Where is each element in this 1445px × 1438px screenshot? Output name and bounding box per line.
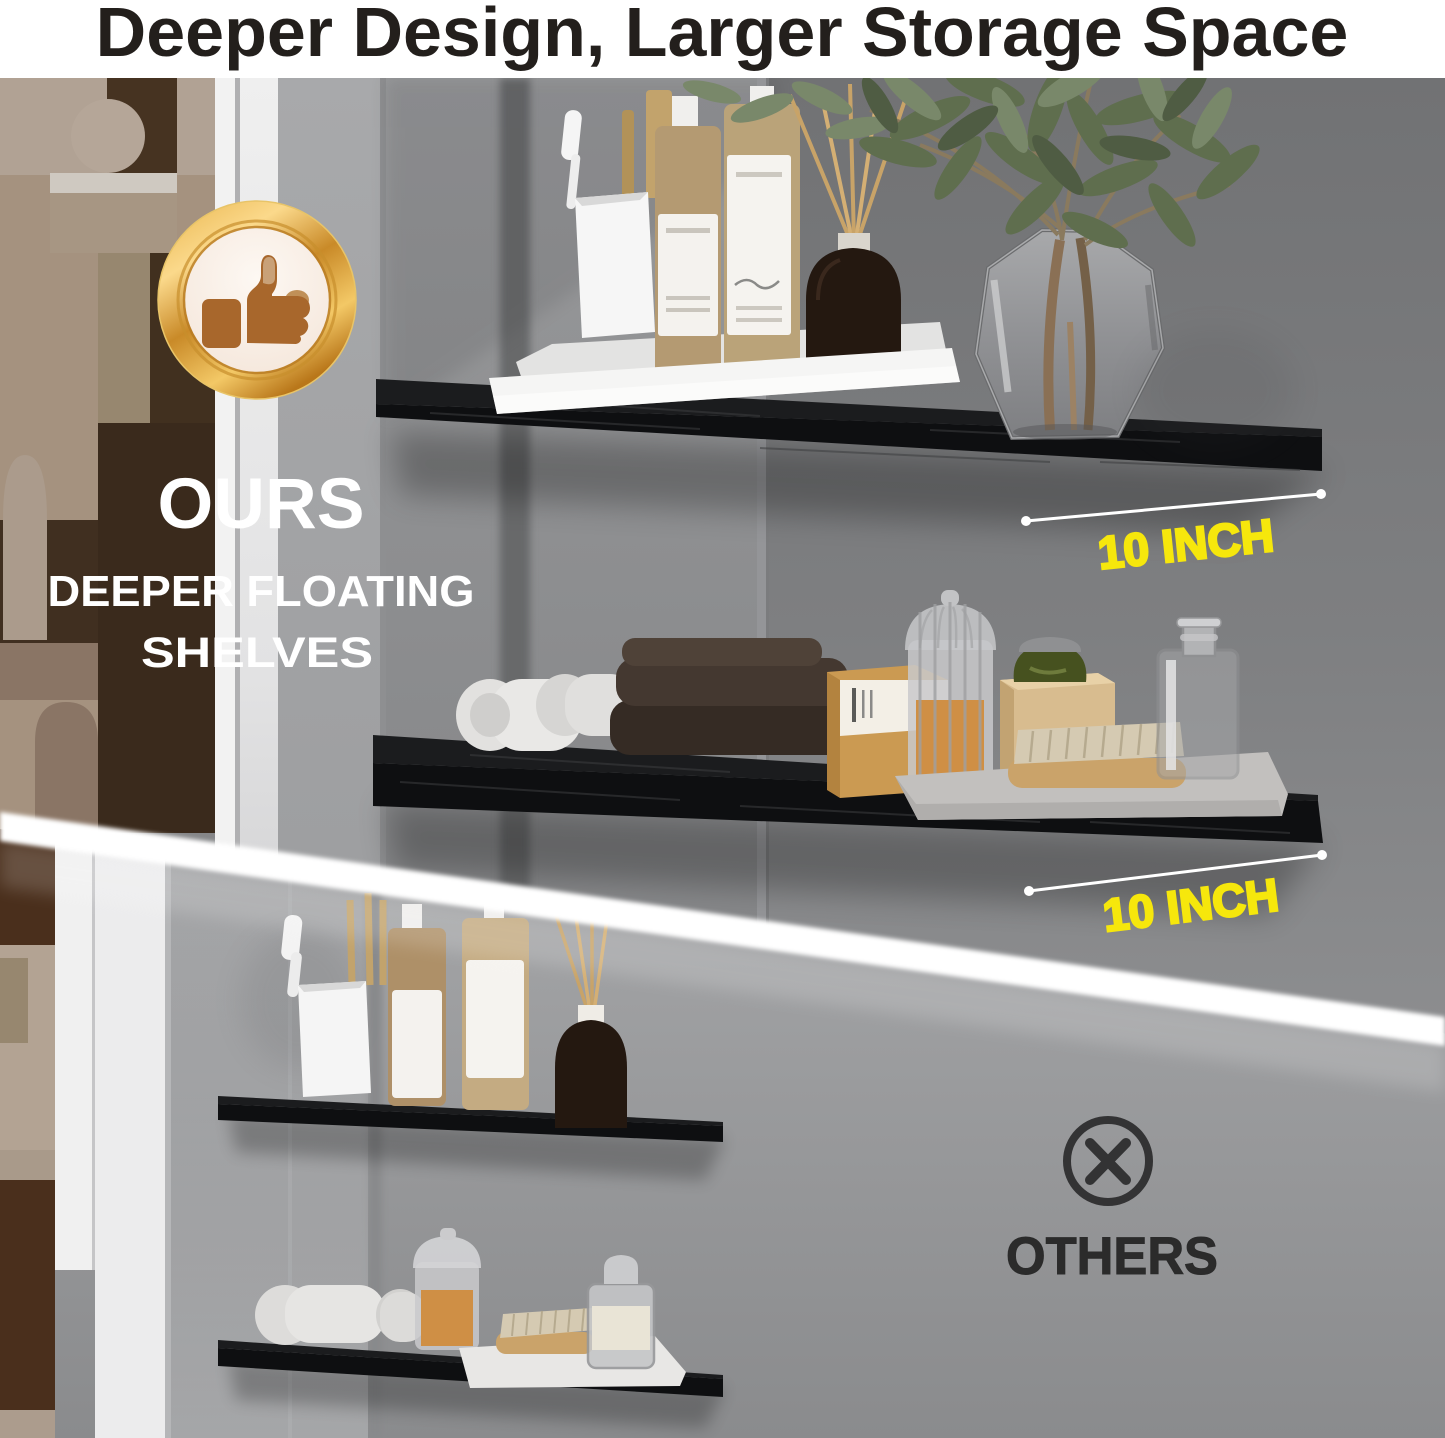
svg-text:OTHERS: OTHERS (1006, 1227, 1218, 1286)
svg-text:OURS: OURS (158, 465, 365, 544)
svg-text:SHELVES: SHELVES (141, 629, 373, 677)
svg-text:Deeper Design, Larger Storage: Deeper Design, Larger Storage Space (96, 0, 1349, 71)
svg-text:DEEPER FLOATING: DEEPER FLOATING (48, 567, 475, 616)
